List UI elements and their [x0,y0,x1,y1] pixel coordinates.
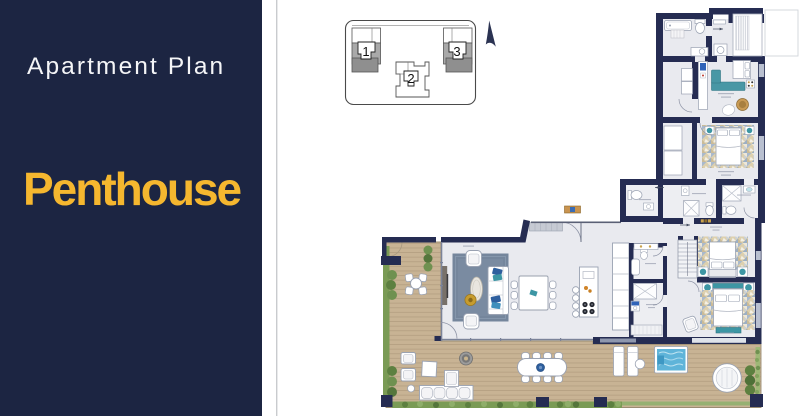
svg-text:1: 1 [362,44,369,59]
svg-text:2: 2 [407,71,414,86]
svg-text:3: 3 [453,44,460,59]
svg-text:Penthouse: Penthouse [23,163,242,215]
svg-text:Apartment Plan: Apartment Plan [27,53,225,80]
